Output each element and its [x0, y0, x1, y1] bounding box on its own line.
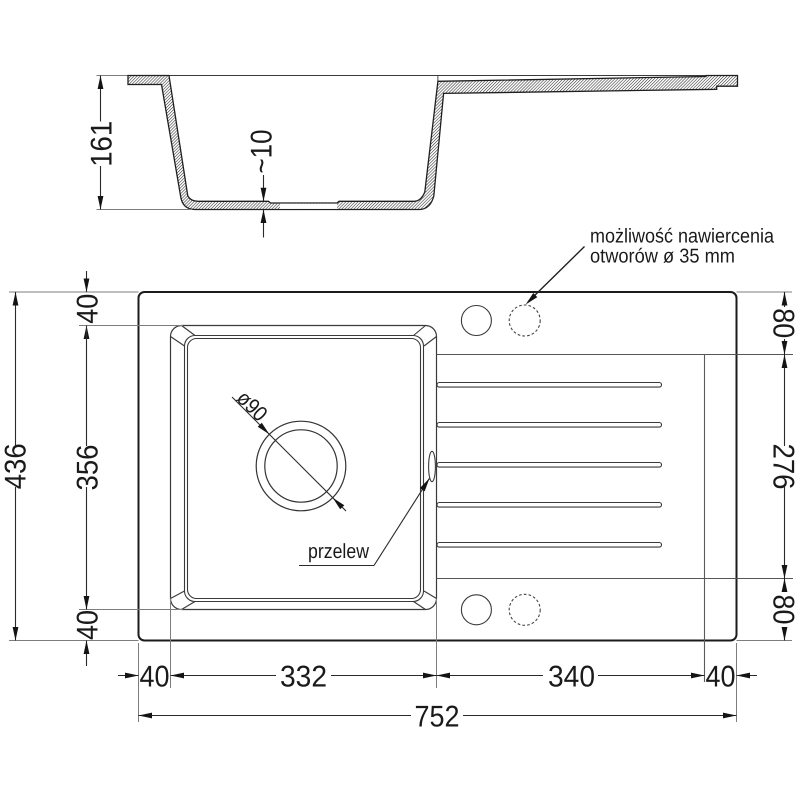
- svg-text:40: 40: [140, 660, 170, 693]
- svg-text:40: 40: [71, 294, 104, 324]
- svg-text:40: 40: [706, 660, 736, 693]
- svg-text:276: 276: [767, 444, 800, 490]
- svg-text:~10: ~10: [246, 130, 279, 174]
- svg-text:356: 356: [71, 445, 104, 491]
- svg-text:340: 340: [548, 660, 595, 693]
- svg-text:332: 332: [280, 660, 327, 693]
- svg-text:40: 40: [71, 610, 104, 640]
- svg-text:otworów ø 35 mm: otworów ø 35 mm: [590, 246, 735, 268]
- svg-text:przelew: przelew: [308, 540, 369, 563]
- svg-text:możliwość nawiercenia: możliwość nawiercenia: [590, 226, 775, 248]
- svg-text:436: 436: [0, 443, 33, 489]
- svg-text:161: 161: [85, 121, 118, 167]
- svg-text:80: 80: [767, 308, 800, 338]
- svg-text:752: 752: [415, 700, 460, 733]
- svg-text:80: 80: [767, 595, 800, 625]
